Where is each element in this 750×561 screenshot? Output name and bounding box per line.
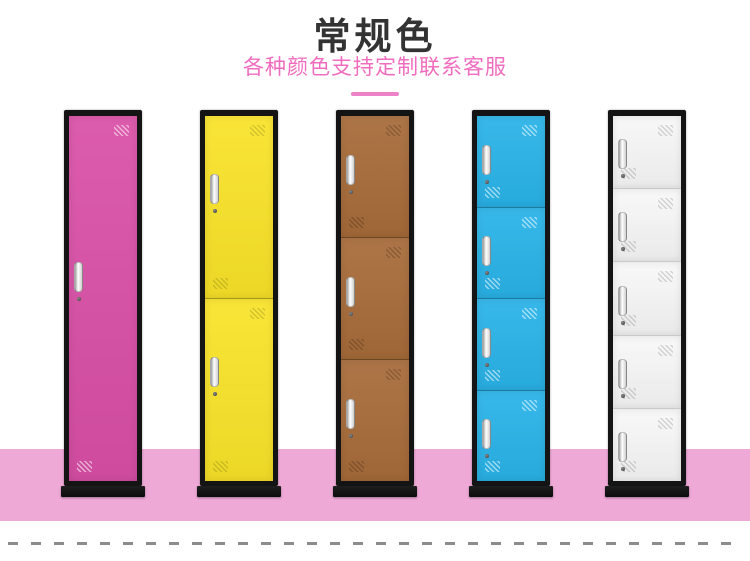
keyhole-icon — [349, 434, 353, 438]
vent-icon — [213, 461, 228, 472]
keyhole-icon — [485, 454, 489, 458]
locker-blue-4-door — [472, 110, 550, 486]
door-handle-icon — [74, 262, 83, 292]
vent-icon — [485, 461, 500, 472]
locker-brown-3-door-door-2 — [341, 237, 409, 359]
vent-icon — [658, 271, 673, 282]
door-fitting — [618, 286, 627, 325]
door-fitting — [346, 155, 355, 194]
door-fitting — [482, 328, 491, 367]
door-fitting — [618, 359, 627, 398]
keyhole-icon — [485, 271, 489, 275]
door-handle-icon — [482, 419, 491, 449]
locker-yellow-2-door-door-1 — [205, 116, 273, 298]
locker-white-5-door — [608, 110, 686, 486]
vent-icon — [114, 125, 129, 136]
keyhole-icon — [485, 180, 489, 184]
locker-brown-3-door-door-stack — [341, 116, 409, 481]
keyhole-icon — [349, 190, 353, 194]
title-underline-accent — [351, 92, 399, 96]
door-handle-icon — [210, 357, 219, 387]
locker-blue-4-door-door-1 — [477, 116, 545, 207]
door-handle-icon — [210, 174, 219, 204]
locker-white-5-door-door-4 — [613, 335, 681, 408]
locker-yellow-2-door-door-2 — [205, 298, 273, 481]
door-fitting — [618, 139, 627, 178]
locker-brown-3-door-door-1 — [341, 116, 409, 237]
keyhole-icon — [621, 247, 625, 251]
keyhole-icon — [621, 321, 625, 325]
locker-white-5-door-door-2 — [613, 188, 681, 261]
locker-blue-4-door-door-2 — [477, 207, 545, 299]
vent-icon — [485, 187, 500, 198]
locker-brown-3-door-plinth — [333, 486, 417, 497]
vent-icon — [213, 278, 228, 289]
vent-icon — [386, 369, 401, 380]
locker-white-5-door-door-1 — [613, 116, 681, 188]
door-handle-icon — [346, 277, 355, 307]
door-handle-icon — [346, 399, 355, 429]
locker-white-5-door-plinth — [605, 486, 689, 497]
locker-rose-1-door-plinth — [61, 486, 145, 497]
vent-icon — [522, 217, 537, 228]
vent-icon — [386, 247, 401, 258]
keyhole-icon — [485, 363, 489, 367]
door-handle-icon — [346, 155, 355, 185]
locker-blue-4-door-door-stack — [477, 116, 545, 481]
locker-yellow-2-door — [200, 110, 278, 486]
locker-yellow-2-door-door-stack — [205, 116, 273, 481]
keyhole-icon — [213, 392, 217, 396]
vent-icon — [250, 125, 265, 136]
door-fitting — [74, 262, 83, 301]
locker-blue-4-door-plinth — [469, 486, 553, 497]
locker-rose-1-door-door-stack — [69, 116, 137, 481]
door-fitting — [618, 432, 627, 471]
locker-white-5-door-door-stack — [613, 116, 681, 481]
locker-white-5-door-door-5 — [613, 408, 681, 481]
vent-icon — [349, 217, 364, 228]
page-subtitle: 各种颜色支持定制联系客服 — [0, 51, 750, 81]
dashed-divider — [8, 542, 742, 545]
door-fitting — [210, 174, 219, 213]
door-handle-icon — [618, 359, 627, 389]
vent-icon — [349, 461, 364, 472]
door-handle-icon — [482, 145, 491, 175]
locker-rose-1-door — [64, 110, 142, 486]
vent-icon — [658, 198, 673, 209]
locker-white-5-door-door-3 — [613, 261, 681, 334]
keyhole-icon — [621, 467, 625, 471]
vent-icon — [349, 339, 364, 350]
keyhole-icon — [77, 297, 81, 301]
keyhole-icon — [621, 174, 625, 178]
vent-icon — [522, 125, 537, 136]
door-handle-icon — [618, 432, 627, 462]
locker-blue-4-door-door-4 — [477, 390, 545, 482]
vent-icon — [77, 461, 92, 472]
door-fitting — [346, 277, 355, 316]
vent-icon — [658, 418, 673, 429]
vent-icon — [386, 125, 401, 136]
door-fitting — [210, 357, 219, 396]
vent-icon — [485, 370, 500, 381]
door-handle-icon — [482, 328, 491, 358]
locker-rose-1-door-door-1 — [69, 116, 137, 481]
door-fitting — [618, 212, 627, 251]
door-handle-icon — [482, 236, 491, 266]
keyhole-icon — [349, 312, 353, 316]
vent-icon — [658, 125, 673, 136]
door-fitting — [482, 236, 491, 275]
keyhole-icon — [213, 209, 217, 213]
locker-brown-3-door-door-3 — [341, 359, 409, 481]
locker-yellow-2-door-plinth — [197, 486, 281, 497]
vent-icon — [522, 308, 537, 319]
door-handle-icon — [618, 286, 627, 316]
door-fitting — [482, 419, 491, 458]
promo-banner: 常规色 各种颜色支持定制联系客服 — [0, 0, 750, 561]
locker-brown-3-door — [336, 110, 414, 486]
vent-icon — [485, 278, 500, 289]
vent-icon — [522, 400, 537, 411]
locker-row — [0, 110, 750, 486]
door-handle-icon — [618, 212, 627, 242]
keyhole-icon — [621, 394, 625, 398]
vent-icon — [658, 345, 673, 356]
vent-icon — [250, 308, 265, 319]
locker-blue-4-door-door-3 — [477, 298, 545, 390]
door-handle-icon — [618, 139, 627, 169]
door-fitting — [482, 145, 491, 184]
door-fitting — [346, 399, 355, 438]
